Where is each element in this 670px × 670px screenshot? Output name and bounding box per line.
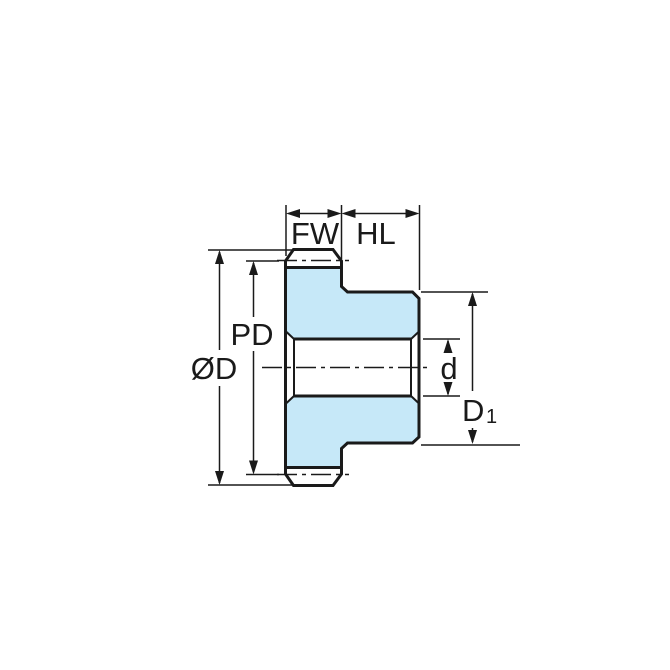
hub-diameter-subscript: 1 xyxy=(486,406,497,428)
pd-arrow-top xyxy=(249,261,258,275)
pd-arrow-bottom xyxy=(249,461,258,475)
bore-diameter-label: d xyxy=(440,351,457,386)
hl-arrow-left xyxy=(342,209,356,218)
hl-arrow-right xyxy=(406,209,420,218)
hub-diameter-label: D xyxy=(462,393,484,428)
drawing-canvas: FW HL PD ØD d D 1 xyxy=(0,0,670,670)
gear-body-upper-fill xyxy=(286,268,419,340)
od-arrow-bottom xyxy=(215,471,224,485)
hub-dia-arrow-top xyxy=(468,292,477,306)
outside-diameter-label: ØD xyxy=(191,351,238,386)
gear-body-lower-fill xyxy=(286,396,419,468)
hub-dia-arrow-bottom xyxy=(468,430,477,444)
pitch-diameter-label: PD xyxy=(230,317,273,352)
hub-length-label: HL xyxy=(356,216,396,251)
face-width-label: FW xyxy=(291,216,340,251)
gear-dimension-diagram: FW HL PD ØD d D 1 xyxy=(0,0,670,670)
od-arrow-top xyxy=(215,250,224,264)
